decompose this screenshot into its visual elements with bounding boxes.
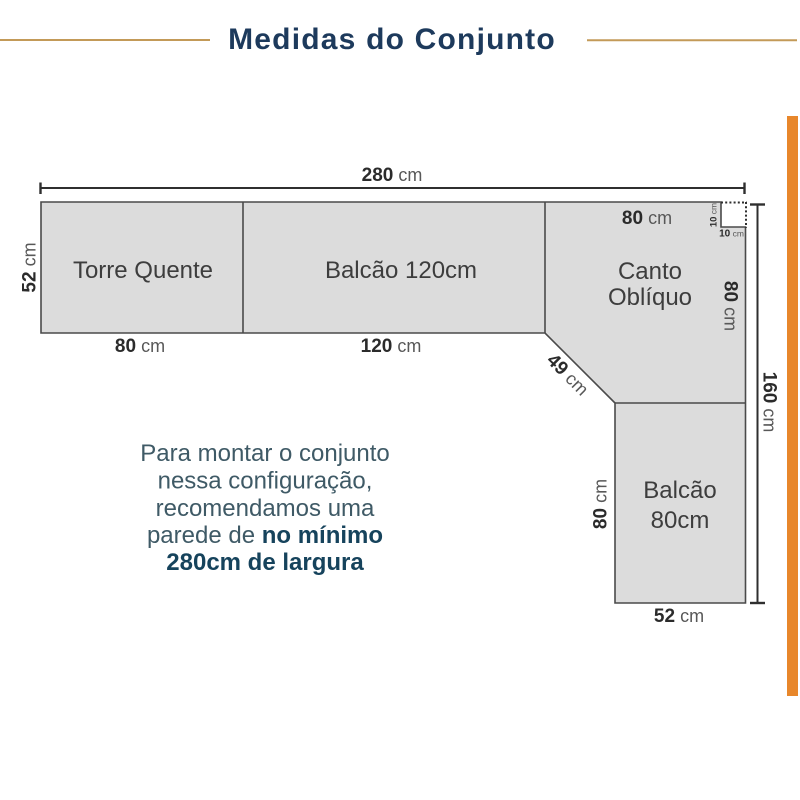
svg-text:recomendamos uma: recomendamos uma (156, 495, 375, 522)
svg-text:52 cm: 52 cm (20, 242, 41, 292)
svg-text:Balcão 120cm: Balcão 120cm (325, 257, 477, 284)
svg-text:nessa configuração,: nessa configuração, (158, 468, 373, 495)
svg-text:Oblíquo: Oblíquo (608, 284, 692, 311)
svg-text:Torre Quente: Torre Quente (73, 257, 213, 284)
svg-text:10 cm: 10 cm (719, 229, 744, 240)
svg-text:80 cm: 80 cm (115, 336, 165, 357)
svg-text:80 cm: 80 cm (591, 479, 612, 529)
svg-text:80 cm: 80 cm (622, 208, 672, 229)
svg-text:10 cm: 10 cm (709, 203, 720, 227)
svg-text:parede de no mínimo: parede de no mínimo (147, 522, 383, 549)
svg-text:Canto: Canto (618, 258, 682, 285)
svg-text:160 cm: 160 cm (759, 372, 780, 433)
svg-text:120 cm: 120 cm (361, 336, 422, 357)
svg-text:80 cm: 80 cm (720, 281, 741, 331)
svg-text:52 cm: 52 cm (654, 606, 704, 627)
svg-text:Balcão: Balcão (643, 477, 716, 504)
svg-text:Medidas do Conjunto: Medidas do Conjunto (228, 23, 556, 56)
svg-text:280 cm: 280 cm (362, 165, 423, 186)
svg-text:280cm de largura: 280cm de largura (166, 549, 364, 576)
svg-text:80cm: 80cm (651, 507, 710, 534)
svg-text:Para montar o conjunto: Para montar o conjunto (140, 440, 389, 467)
